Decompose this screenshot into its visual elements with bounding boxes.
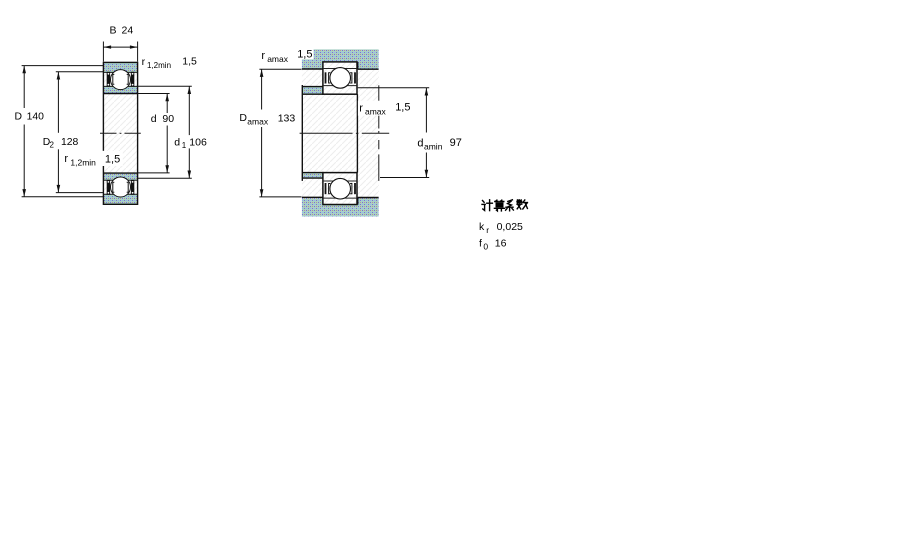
svg-text:1,5: 1,5 <box>395 101 410 113</box>
svg-text:1: 1 <box>182 141 187 150</box>
svg-text:amin: amin <box>424 142 443 152</box>
svg-text:1,5: 1,5 <box>182 56 197 68</box>
svg-text:0,025: 0,025 <box>497 221 523 233</box>
svg-text:1,2min: 1,2min <box>70 157 96 167</box>
svg-text:D: D <box>15 112 23 123</box>
svg-text:16: 16 <box>495 237 507 249</box>
svg-text:B: B <box>110 25 117 37</box>
svg-text:0: 0 <box>483 241 488 251</box>
svg-text:2: 2 <box>50 141 55 150</box>
svg-text:f: f <box>479 237 482 249</box>
svg-text:1,5: 1,5 <box>297 48 312 60</box>
svg-text:1,5: 1,5 <box>105 154 120 166</box>
svg-text:amax: amax <box>267 54 289 64</box>
svg-text:r: r <box>486 225 489 235</box>
svg-text:amax: amax <box>247 117 269 127</box>
svg-text:d: d <box>151 113 157 125</box>
svg-text:d: d <box>417 137 423 149</box>
svg-text:r: r <box>261 50 265 62</box>
svg-text:r: r <box>142 56 146 68</box>
svg-text:k: k <box>479 221 485 233</box>
svg-text:140: 140 <box>27 112 45 123</box>
svg-text:r: r <box>359 103 363 115</box>
svg-text:r: r <box>64 153 68 165</box>
svg-text:106: 106 <box>189 136 207 148</box>
svg-text:D: D <box>239 112 247 124</box>
svg-text:97: 97 <box>450 137 462 149</box>
svg-text:128: 128 <box>61 137 79 148</box>
svg-text:1,2min: 1,2min <box>147 61 171 70</box>
svg-text:24: 24 <box>122 25 134 37</box>
svg-text:d: d <box>174 136 180 148</box>
svg-text:133: 133 <box>278 113 296 125</box>
svg-text:amax: amax <box>365 106 387 116</box>
svg-text:90: 90 <box>162 113 174 125</box>
